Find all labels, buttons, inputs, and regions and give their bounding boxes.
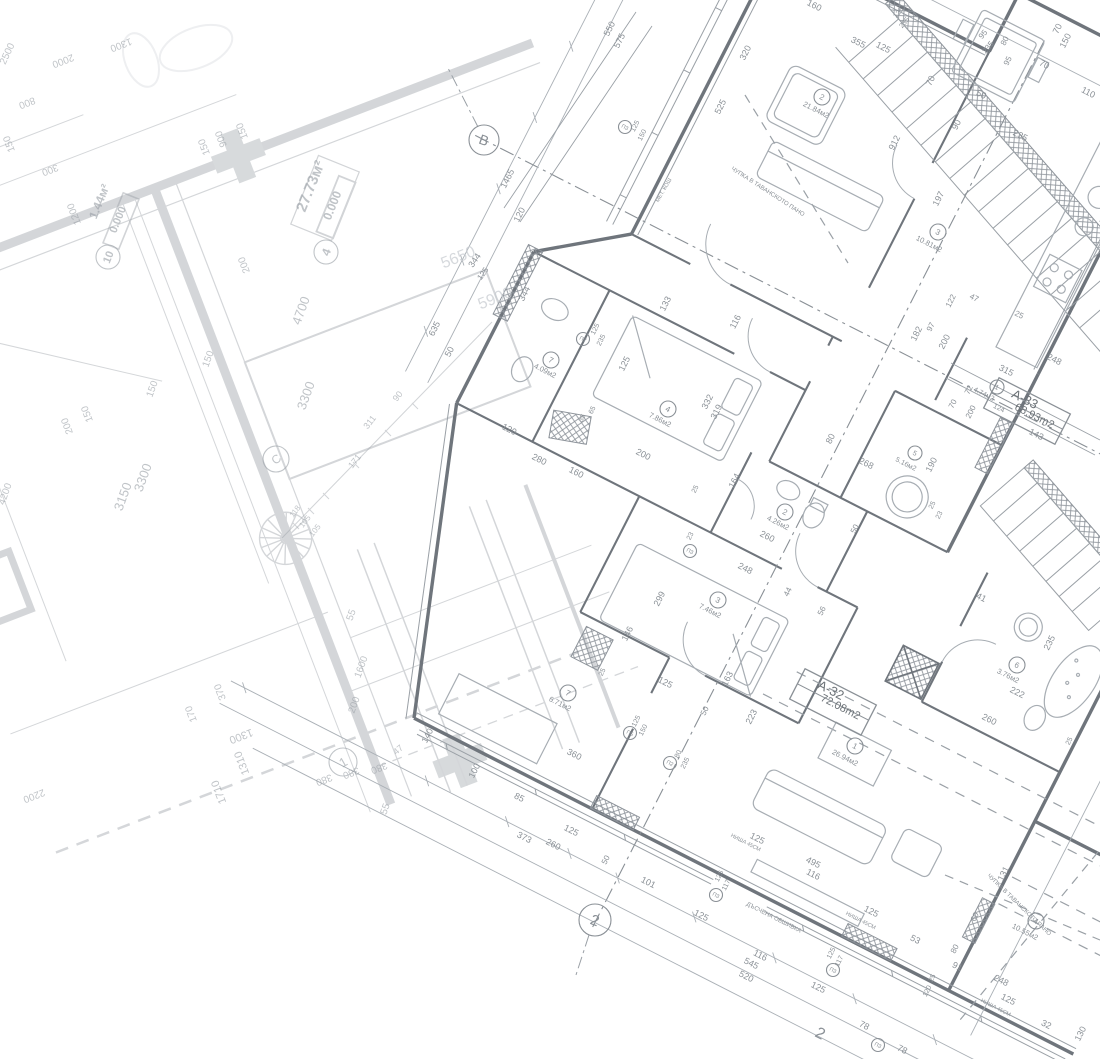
room-bubble-label: 5 bbox=[911, 450, 918, 458]
dimension-label: 53 bbox=[909, 933, 922, 946]
window-marker: П3 bbox=[872, 1039, 885, 1052]
dimension-label: 7.46м2 bbox=[697, 601, 722, 620]
dimension-label: 125 bbox=[616, 355, 632, 373]
dimension-label: 120 bbox=[500, 421, 518, 437]
dimension-label: 3150 bbox=[111, 480, 135, 512]
dimension-label: 320 bbox=[737, 44, 753, 62]
dimension-label: 78 bbox=[858, 1019, 871, 1032]
dimension-label: 125 bbox=[631, 714, 643, 728]
armchair bbox=[890, 827, 944, 878]
dimension-label: 150 bbox=[196, 137, 212, 157]
dimension-label: 47 bbox=[968, 292, 981, 304]
dimension-label: 47 bbox=[391, 743, 405, 757]
dimension-label: 1300 bbox=[108, 35, 133, 53]
dimension-label: 133 bbox=[657, 295, 673, 313]
window-marker: П3 bbox=[619, 121, 632, 134]
dimension-label: 170 bbox=[183, 704, 199, 724]
dimension-label: 122 bbox=[944, 292, 958, 308]
dimension-label: 10.81м2 bbox=[915, 233, 944, 254]
grid-bubble-B: B bbox=[469, 125, 499, 155]
dimension-label: 4200 bbox=[0, 481, 15, 506]
column-cross bbox=[0, 122, 503, 925]
dimension-label: 190 bbox=[923, 456, 939, 474]
window-marker: П5 bbox=[624, 727, 637, 740]
dimension-label: 200 bbox=[964, 403, 978, 419]
dimension-label: 50 bbox=[849, 522, 861, 535]
window-marker: П3 bbox=[827, 964, 840, 977]
room-bubble: 1 bbox=[847, 738, 863, 754]
dimension-label: 90 bbox=[950, 118, 963, 131]
cladding bbox=[417, 730, 1065, 1059]
dimension-label: 373 bbox=[515, 829, 533, 845]
dimension-label: 25 bbox=[928, 973, 938, 983]
dimension-label: 4.74м2 bbox=[972, 386, 995, 402]
dimension-label: 125 bbox=[999, 991, 1017, 1007]
dimension-label: 50 bbox=[600, 853, 612, 866]
dimension-label: 222 bbox=[1008, 684, 1026, 700]
dimension-label: 97 bbox=[925, 320, 937, 333]
dimension-label: 248 bbox=[1045, 351, 1063, 367]
dimension-label: 200 bbox=[59, 416, 75, 436]
stair-flight-lower bbox=[980, 460, 1100, 630]
room-bubble: 2 bbox=[777, 504, 793, 520]
dimension-label: 575 bbox=[611, 32, 627, 50]
dimension-label: 130 bbox=[1072, 1025, 1088, 1043]
window-marker: П3 bbox=[710, 889, 723, 902]
dimension-label: 125 bbox=[562, 822, 580, 838]
dimension-label: 90 bbox=[391, 389, 405, 403]
dimension-label: 44 bbox=[782, 585, 794, 598]
dimension-label: 105 bbox=[297, 513, 313, 529]
dimension-label: 635 bbox=[426, 320, 442, 338]
left-plan-text-layer: 25002000130080015030012001.44м²0.0001509… bbox=[0, 35, 405, 816]
dimension-label: 4700 bbox=[289, 294, 313, 326]
window-marker-label: П2 bbox=[665, 760, 674, 769]
dimension-label: 32 bbox=[1040, 1018, 1053, 1031]
dimension-label: 80 bbox=[949, 942, 961, 955]
toilet bbox=[799, 499, 829, 531]
dimension-label: 235 bbox=[596, 333, 608, 347]
blueprint-page: 56505900 25002000130080015030012001.44м²… bbox=[0, 0, 1100, 1059]
dim-chains bbox=[208, 0, 1100, 1059]
dimension-label: 1300 bbox=[227, 726, 254, 746]
dimension-label: 160 bbox=[805, 0, 823, 13]
dimension-label: 25 bbox=[928, 500, 938, 510]
dimension-label: 280 bbox=[530, 451, 548, 467]
room-bubble: 4 bbox=[660, 401, 676, 417]
dimension-label: 70 bbox=[924, 74, 937, 87]
grid-bubble-1-label: 1 bbox=[336, 754, 350, 771]
room-bubble-label: 1 bbox=[851, 741, 860, 751]
dimension-label: 197 bbox=[930, 190, 946, 208]
dimension-label: 117 bbox=[834, 955, 845, 968]
round-tub bbox=[879, 469, 935, 525]
grid-bubble-2-label: 2 bbox=[588, 911, 602, 930]
window-marker-label: П3 bbox=[620, 124, 629, 133]
dimension-label: 56 bbox=[816, 604, 828, 617]
dimension-label: 150 bbox=[638, 723, 650, 737]
dimension-label: 70 bbox=[947, 397, 959, 410]
grid-bubble-2: 2 bbox=[579, 904, 611, 936]
stove bbox=[1034, 254, 1082, 302]
dimension-label: 2500 bbox=[0, 41, 18, 66]
spiral-stair bbox=[252, 505, 319, 572]
dashed-line bbox=[56, 652, 579, 853]
dimension-label: 116 bbox=[805, 867, 822, 882]
dimension-label: 125 bbox=[874, 39, 892, 55]
dimension-label: 260 bbox=[758, 528, 776, 544]
dimension-label: 26.94м2 bbox=[831, 747, 860, 768]
dimension-label: 150 bbox=[637, 128, 649, 142]
dimension-label: 70 bbox=[1051, 22, 1064, 35]
dimension-label: 150 bbox=[79, 404, 95, 424]
dimension-label: 125 bbox=[862, 903, 880, 919]
dimension-label: 1710 bbox=[209, 778, 229, 805]
dimension-label: 550 bbox=[601, 20, 617, 38]
dimension-label: 25 bbox=[598, 667, 608, 677]
dimension-label: 260 bbox=[980, 711, 998, 727]
outer-walls bbox=[320, 0, 1100, 1054]
bed bbox=[599, 543, 790, 697]
dimension-label: 143 bbox=[1027, 426, 1045, 442]
dimension-label: 55 bbox=[345, 608, 359, 623]
dimension-label: 85 bbox=[513, 791, 526, 804]
ghost-fixture bbox=[153, 16, 238, 81]
room-bubble-4: 4 bbox=[314, 240, 338, 264]
dimension-label: 80 bbox=[999, 34, 1011, 47]
dimension-label: 2 bbox=[812, 1024, 828, 1043]
dimension-label: 182 bbox=[908, 325, 924, 343]
shaft bbox=[885, 645, 939, 699]
dimension-label: 235 bbox=[680, 756, 692, 770]
window-marker-label: П3 bbox=[685, 548, 694, 557]
dimension-label: 27.73м² bbox=[293, 158, 329, 214]
dimension-label: 300 bbox=[40, 161, 60, 177]
room-bubble: 7 bbox=[560, 685, 576, 701]
dimension-label: 110 bbox=[1080, 85, 1097, 100]
dimension-label: 360 bbox=[565, 746, 583, 762]
blueprint-canvas: 56505900 25002000130080015030012001.44м²… bbox=[0, 0, 1100, 1059]
furniture bbox=[432, 0, 1100, 945]
dimension-label: 380 bbox=[314, 771, 334, 787]
dimension-label: 525 bbox=[712, 98, 728, 116]
dimension-label: 268 bbox=[857, 455, 875, 471]
dimension-label: 101 bbox=[639, 874, 657, 890]
wash-basin bbox=[538, 294, 572, 325]
dimension-label: 78 bbox=[896, 1043, 909, 1056]
dimension-label: 1600 bbox=[353, 654, 371, 679]
window-marker: П3 bbox=[684, 545, 697, 558]
dimension-label: 311 bbox=[361, 413, 378, 430]
room-bubble-label: 3 bbox=[714, 595, 723, 605]
dimension-label: 200 bbox=[936, 333, 952, 351]
dimension-label: 23 bbox=[935, 510, 945, 520]
dimension-label: 260 bbox=[544, 836, 562, 852]
dimension-label: 299 bbox=[651, 590, 667, 608]
room-bubble: 3 bbox=[930, 224, 946, 240]
room-bubble-label: 2 bbox=[818, 92, 827, 102]
sink bbox=[1084, 183, 1100, 213]
dimension-label: 125 bbox=[826, 946, 838, 960]
dimension-label: 65 bbox=[588, 405, 598, 415]
dim-line bbox=[282, 322, 492, 538]
dimension-label: ЧУПКА В ТАВАНСКОТО ПАНО bbox=[730, 166, 806, 218]
dimension-label: 1310 bbox=[232, 749, 252, 776]
dimension-label: 2200 bbox=[21, 786, 46, 804]
balcony-rail bbox=[607, 0, 768, 225]
room-bubble-label: 3 bbox=[934, 227, 943, 237]
dimension-label: 248 bbox=[736, 560, 754, 576]
grid-bubble-C: C bbox=[263, 446, 289, 472]
wash-basin bbox=[1009, 608, 1047, 646]
dimension-label: 50 bbox=[443, 345, 456, 358]
room-bubble-label: 6 bbox=[1013, 660, 1022, 670]
room-bubble-label: 7 bbox=[564, 688, 573, 698]
dimension-label: 900 bbox=[213, 129, 229, 149]
dimension-label: 235 bbox=[1041, 634, 1057, 652]
dimension-label: 520 bbox=[737, 968, 755, 984]
dimension-label: ДЪСЧЕНА ОБШИВКА bbox=[745, 902, 802, 935]
room-bubble-10: 10 bbox=[96, 245, 120, 269]
window-marker-label: П3 bbox=[873, 1042, 882, 1051]
dimension-label: 200 bbox=[236, 255, 252, 275]
dimension-label: 912 bbox=[886, 134, 902, 152]
dimension-label: 5.16м2 bbox=[894, 456, 917, 472]
dimension-label: 150 bbox=[1, 134, 17, 154]
dimension-label: 315 bbox=[997, 362, 1015, 378]
room-bubble-label: 4 bbox=[664, 404, 673, 414]
window-marker-label: П3 bbox=[711, 892, 720, 901]
dimension-label: 80 bbox=[824, 432, 837, 445]
dimension-label: 125 bbox=[809, 979, 827, 995]
window-marker-label: П3 bbox=[828, 967, 837, 976]
dimension-label: 3300 bbox=[131, 461, 155, 493]
window-marker: П2 bbox=[664, 757, 677, 770]
dimension-label: 800 bbox=[17, 94, 37, 110]
dimension-label: 125 bbox=[656, 674, 674, 690]
dimension-label: 1465 bbox=[498, 167, 516, 189]
room-bubble: 7 bbox=[543, 352, 559, 368]
dimension-label: 120 bbox=[511, 206, 527, 224]
room-bubble-4-label: 4 bbox=[319, 246, 335, 258]
dimension-label: 171 bbox=[346, 452, 363, 470]
bed bbox=[592, 315, 763, 461]
sofa bbox=[751, 767, 889, 866]
dimension-label: 95 bbox=[1002, 54, 1014, 67]
dimension-label: 116 bbox=[728, 313, 743, 330]
room-bubble: 5 bbox=[908, 446, 922, 460]
room-bubble: 3 bbox=[710, 592, 726, 608]
dimension-label: 248 bbox=[992, 972, 1010, 988]
dimension-label: 200 bbox=[634, 446, 652, 462]
room-bubble-10-label: 10 bbox=[101, 249, 117, 265]
dimension-label: 4.09м2 bbox=[532, 361, 557, 380]
dimension-label: 25 bbox=[691, 484, 701, 494]
dimension-label: 150 bbox=[145, 379, 161, 399]
dimension-label: 2000 bbox=[50, 51, 75, 69]
room-bubble: 2 bbox=[814, 89, 830, 105]
room-bubble: 6 bbox=[1009, 657, 1025, 673]
dimension-label: 223 bbox=[743, 708, 759, 726]
wash-basin bbox=[773, 477, 803, 504]
right-plan-text-layer: 5505751465120344125344635501202801603205… bbox=[419, 0, 1100, 1056]
dimension-label: 23 bbox=[686, 531, 696, 541]
grid-bubble-B-label: B bbox=[477, 131, 491, 149]
left-plan-layer bbox=[0, 0, 773, 932]
dimension-label: 105 bbox=[307, 522, 323, 538]
room-bubble-label: 7 bbox=[547, 355, 556, 365]
dimension-label: 370 bbox=[212, 682, 228, 702]
dimension-label: 3300 bbox=[294, 379, 318, 411]
left-plan-extras bbox=[103, 16, 492, 538]
room-bubble-label: 2 bbox=[781, 507, 790, 517]
